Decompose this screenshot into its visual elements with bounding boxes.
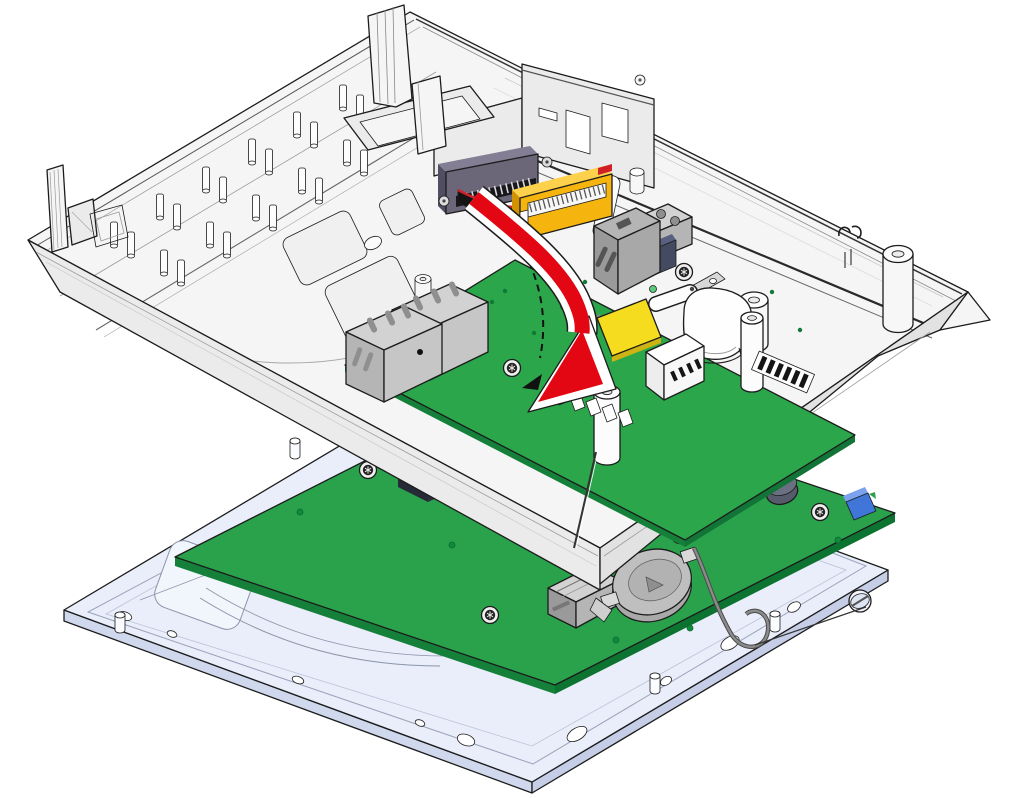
wall-cutout bbox=[566, 110, 590, 154]
illustration-canvas bbox=[0, 0, 1024, 798]
assembly-illustration bbox=[0, 0, 1024, 798]
pcb-screw bbox=[504, 360, 521, 377]
wall-cutout bbox=[602, 103, 628, 143]
sensor-dot bbox=[417, 349, 423, 355]
pcb-screw bbox=[676, 264, 693, 281]
led bbox=[650, 286, 657, 293]
